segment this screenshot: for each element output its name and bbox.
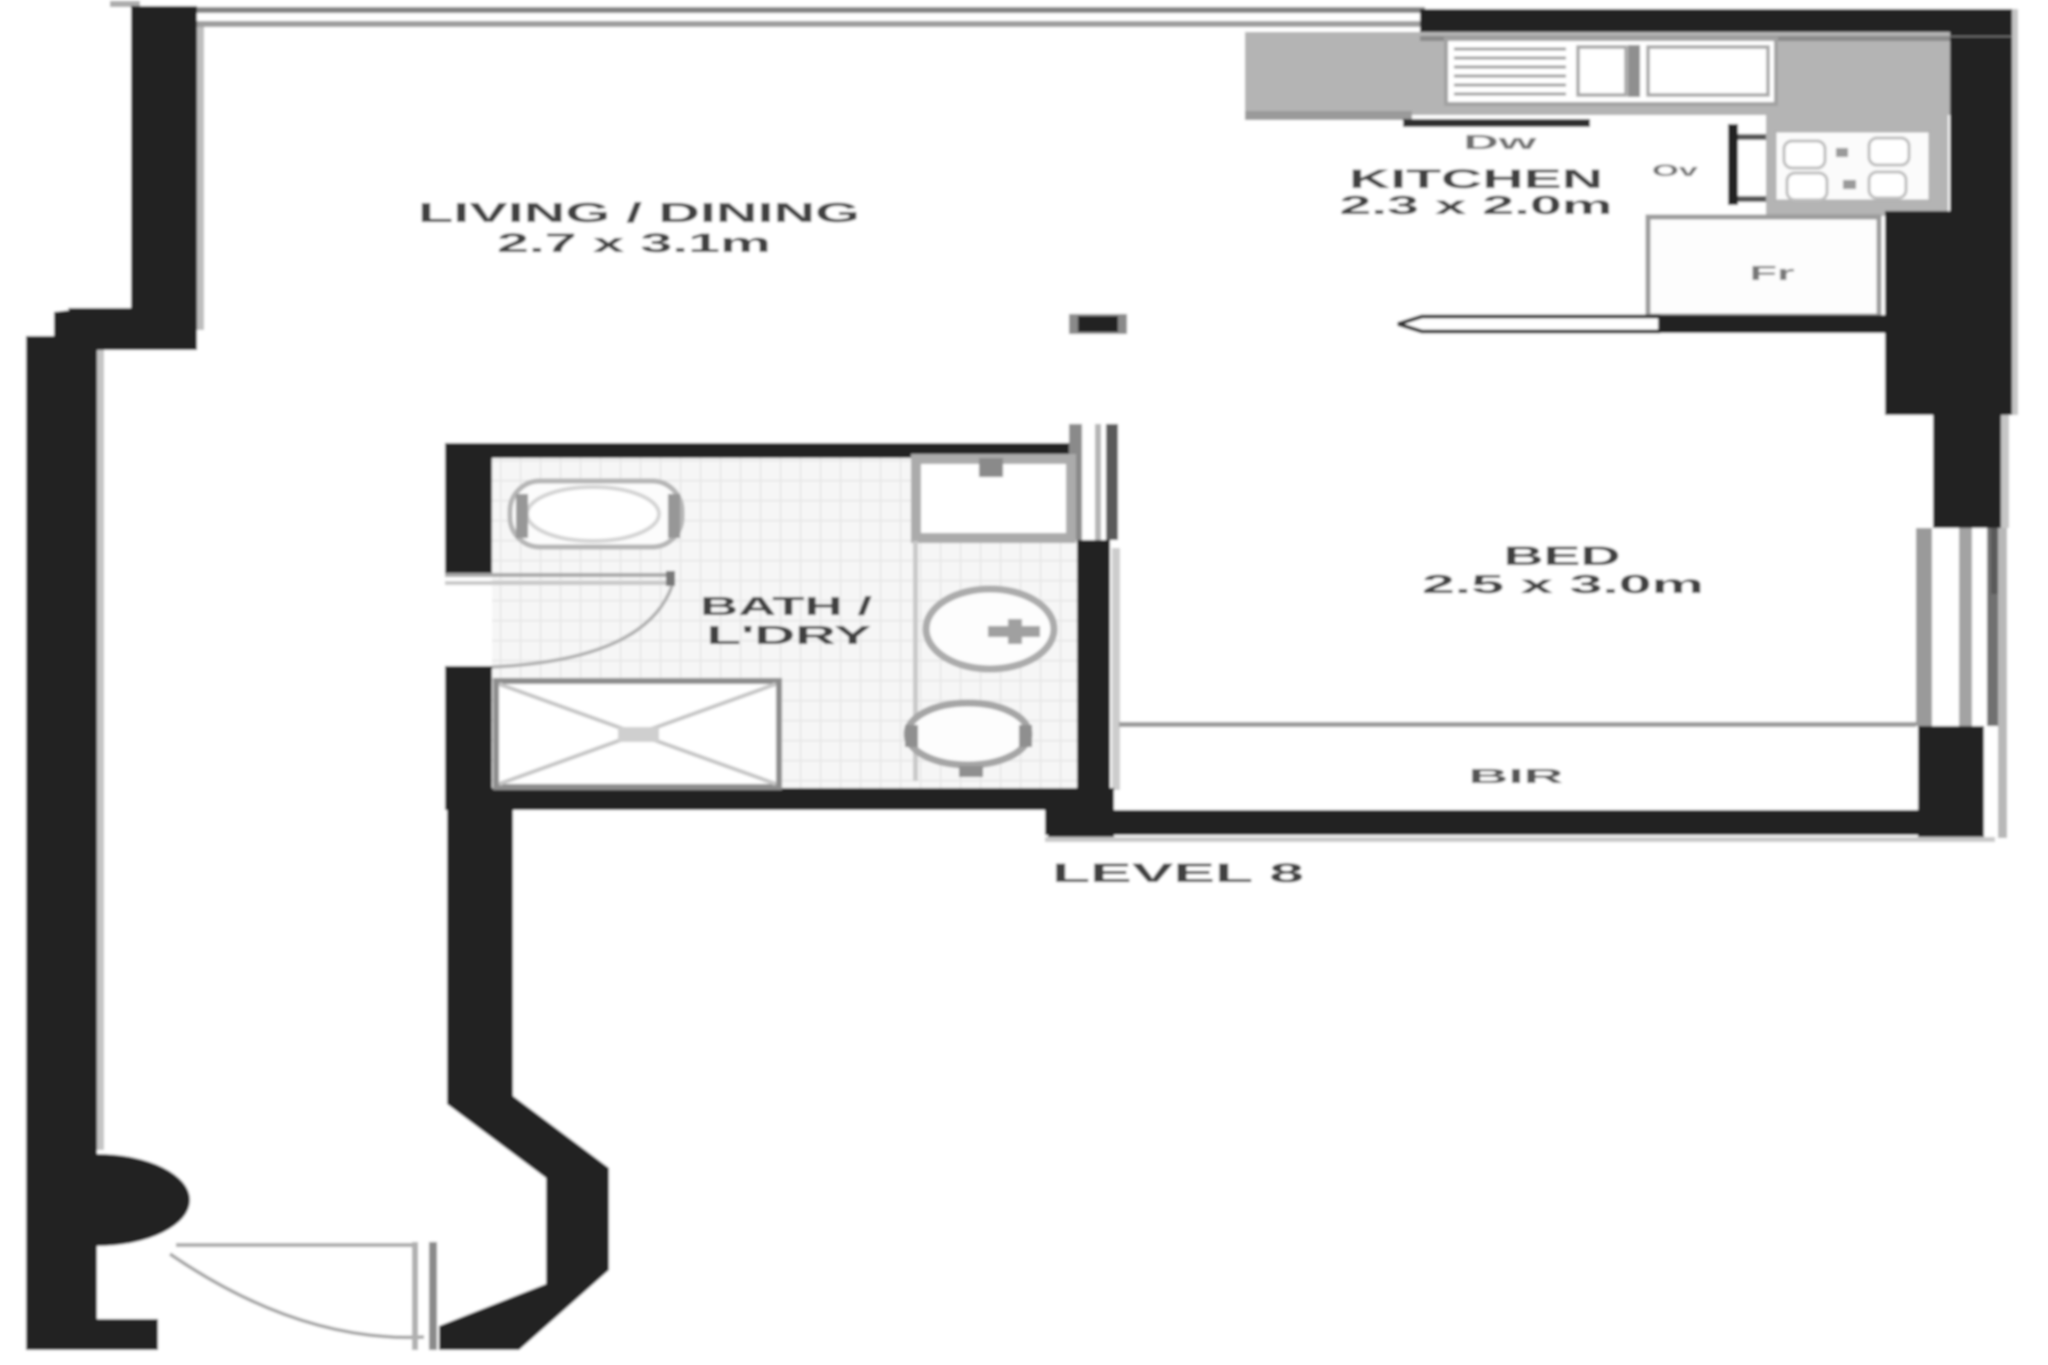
svg-text:L'DRY: L'DRY (707, 620, 872, 650)
svg-text:Fr: Fr (1750, 263, 1795, 285)
svg-text:Dw: Dw (1464, 132, 1538, 154)
svg-text:Ov: Ov (1652, 161, 1699, 180)
svg-text:LEVEL 8: LEVEL 8 (1052, 858, 1304, 888)
svg-text:2.5 x 3.0m: 2.5 x 3.0m (1422, 569, 1704, 599)
svg-text:BIR: BIR (1469, 766, 1566, 788)
svg-text:LIVING / DINING: LIVING / DINING (418, 197, 860, 228)
svg-text:2.3 x 2.0m: 2.3 x 2.0m (1340, 190, 1613, 220)
svg-text:BED: BED (1504, 541, 1621, 571)
svg-text:BATH /: BATH / (700, 591, 872, 621)
svg-text:2.7 x 3.1m: 2.7 x 3.1m (497, 228, 771, 258)
